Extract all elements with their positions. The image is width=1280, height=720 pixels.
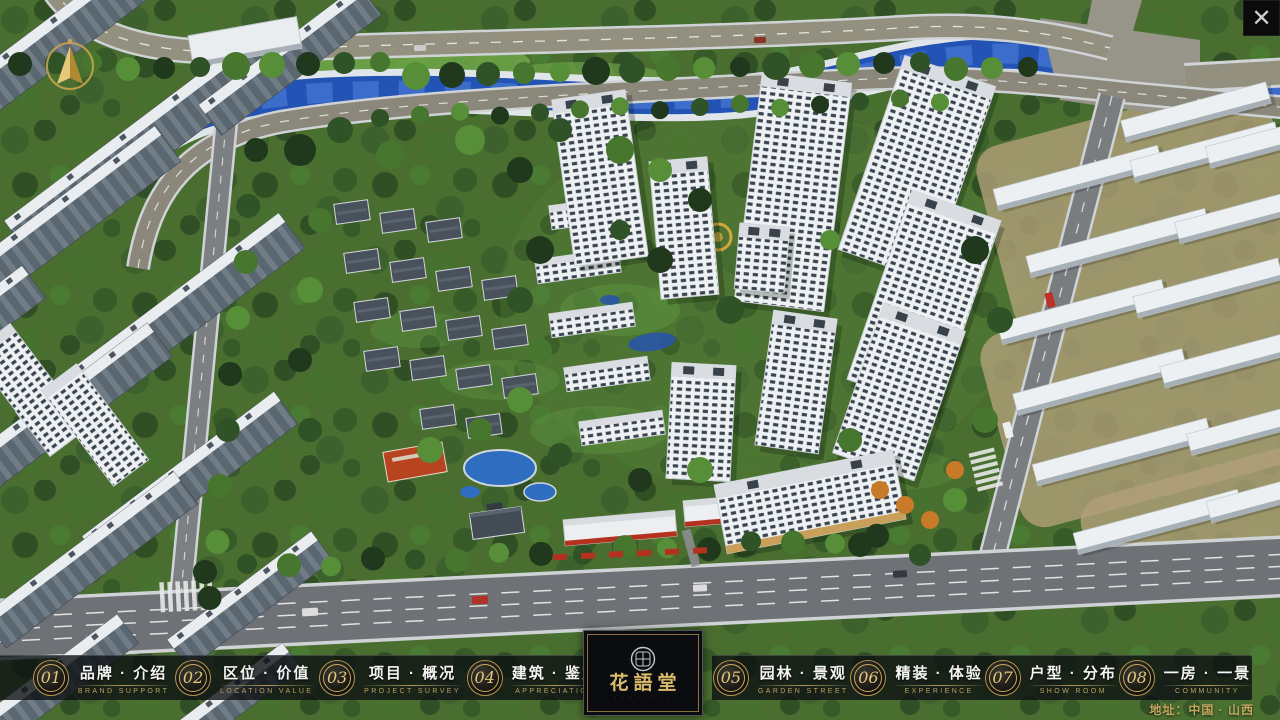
project-address: 地址：中国 · 山西 [1149, 701, 1254, 718]
nav-divider [1030, 685, 1117, 686]
nav-divider [1164, 685, 1251, 686]
nav-divider [78, 685, 169, 686]
nav-item-brand-intro[interactable]: 01 品牌 · 介绍 BRAND SUPPORT [33, 660, 169, 696]
nav-divider [758, 685, 849, 686]
nav-item-project-survey[interactable]: 03 项目 · 概况 PROJECT SURVEY [319, 660, 461, 696]
nav-subtitle: PROJECT SURVEY [364, 688, 461, 695]
sales-presentation-screen: ✕ 01 品牌 · 介绍 BRAND SUPPORT 02 区位 · 价值 LO… [0, 0, 1280, 720]
nav-label: 品牌 · 介绍 [80, 662, 167, 683]
nav-label: 区位 · 价值 [223, 662, 310, 683]
nav-badge-01: 01 [33, 660, 69, 696]
nav-item-architecture[interactable]: 04 建筑 · 鉴赏 APPRECIATION [467, 660, 599, 696]
nav-label: 一房 · 一景 [1164, 662, 1251, 683]
compass-icon [42, 34, 98, 94]
nav-badge-07: 07 [985, 660, 1021, 696]
nav-item-location-value[interactable]: 02 区位 · 价值 LOCATION VALUE [175, 660, 313, 696]
nav-divider [895, 685, 982, 686]
nav-divider [220, 685, 313, 686]
masterplan-map[interactable] [0, 0, 1280, 720]
nav-badge-03: 03 [319, 660, 355, 696]
nav-label: 户型 · 分布 [1030, 662, 1117, 683]
nav-subtitle: GARDEN STREET [758, 688, 849, 695]
nav-badge-04: 04 [467, 660, 503, 696]
pond [464, 450, 536, 486]
nav-label: 园林 · 景观 [760, 662, 847, 683]
bottom-nav-left: 01 品牌 · 介绍 BRAND SUPPORT 02 区位 · 价值 LOCA… [0, 655, 602, 700]
nav-subtitle: EXPERIENCE [905, 688, 974, 695]
nav-subtitle: SHOW ROOM [1040, 688, 1107, 695]
nav-badge-05: 05 [713, 660, 749, 696]
nav-subtitle: BRAND SUPPORT [78, 688, 169, 695]
nav-item-interior-experience[interactable]: 06 精装 · 体验 EXPERIENCE [850, 660, 982, 696]
close-icon: ✕ [1251, 6, 1271, 30]
nav-subtitle: COMMUNITY [1175, 688, 1240, 695]
project-logo-panel[interactable]: 花語堂 · · · · · · · · [583, 630, 703, 716]
nav-item-floorplans[interactable]: 07 户型 · 分布 SHOW ROOM [985, 660, 1117, 696]
nav-badge-02: 02 [175, 660, 211, 696]
nav-badge-06: 06 [850, 660, 886, 696]
nav-divider [364, 685, 461, 686]
close-button[interactable]: ✕ [1243, 0, 1280, 36]
seal-emblem-icon [630, 646, 656, 672]
project-name: 花語堂 [604, 674, 681, 693]
nav-label: 项目 · 概况 [369, 662, 456, 683]
nav-item-garden-landscape[interactable]: 05 园林 · 景观 GARDEN STREET [713, 660, 849, 696]
project-name-caption: · · · · · · · · [614, 695, 672, 701]
nav-item-room-view[interactable]: 08 一房 · 一景 COMMUNITY [1119, 660, 1251, 696]
nav-badge-08: 08 [1119, 660, 1155, 696]
nav-label: 精装 · 体验 [895, 662, 982, 683]
nav-subtitle: LOCATION VALUE [220, 688, 313, 695]
bottom-nav-right: 05 园林 · 景观 GARDEN STREET 06 精装 · 体验 EXPE… [712, 655, 1252, 700]
